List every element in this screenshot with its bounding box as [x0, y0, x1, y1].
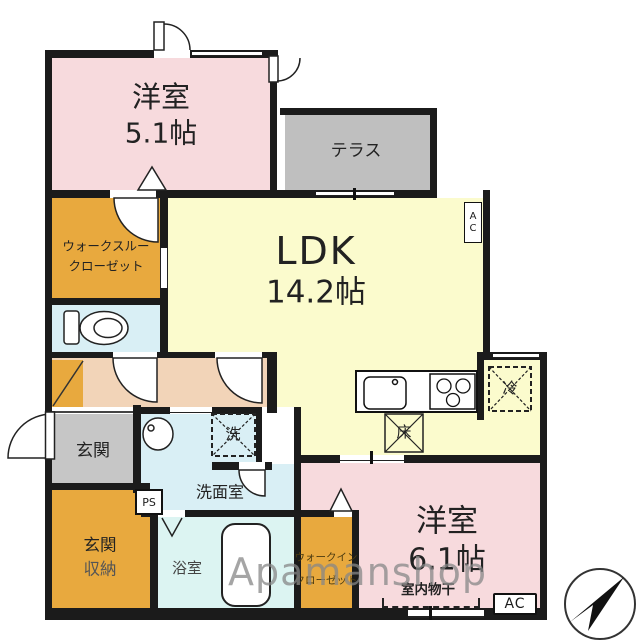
washbasin-icon [143, 418, 173, 450]
washer-label: 洗 [225, 427, 240, 443]
room-size-bedroom1: 5.1帖 [125, 118, 198, 147]
door-swing-marker [138, 167, 166, 190]
door-swing-arc [277, 58, 300, 81]
room-label-washroom: 洗面室 [196, 485, 244, 502]
ps-box: PS [135, 489, 163, 515]
ac-lower-label: AC [504, 596, 525, 612]
room-label-storage-line1: 玄関 [84, 536, 117, 553]
door-swing-marker [330, 489, 352, 511]
ac-box-lower: AC [493, 593, 537, 615]
room-label-bathroom: 浴室 [172, 561, 202, 577]
north-arrow-icon [565, 569, 635, 639]
room-label-entrance: 玄関 [76, 443, 110, 461]
folding-door-marker [162, 518, 182, 536]
door-swing-arc [164, 24, 190, 50]
refrigerator-label: 冷 [502, 381, 517, 397]
ps-label: PS [142, 496, 156, 509]
indoor-drying-rack [382, 598, 480, 608]
door-swing-arc [113, 358, 157, 402]
room-label-bedroom1: 洋室 [132, 82, 190, 112]
door-leaf [269, 56, 278, 82]
floor-plan: 洋室 5.1帖 テラス LDK 14.2帖 ウォークスルー クローゼット 玄関 … [0, 0, 640, 640]
floor-hatch-label: 床 [396, 425, 411, 441]
door-leaf [46, 412, 55, 459]
door-leaf [154, 22, 164, 50]
door-swing-arc [114, 198, 158, 242]
room-label-bedroom2: 洋室 [416, 506, 478, 539]
ac-box-upper: AC [464, 202, 482, 243]
shoe-cabinet-diagonal [53, 361, 83, 406]
room-label-storage-line2: 収納 [84, 560, 117, 577]
door-swing-arc [217, 358, 262, 403]
room-label-ldk: LDK [275, 232, 356, 272]
room-label-wtc-line1: ウォークスルー [62, 239, 149, 252]
toilet-icon [64, 311, 128, 345]
kitchen-counter [356, 371, 477, 412]
room-label-wtc-line2: クローゼット [68, 259, 143, 272]
watermark: Apamanshop [228, 550, 487, 594]
kitchen-sink-icon [364, 377, 406, 409]
room-label-terrace: テラス [331, 143, 382, 161]
room-size-ldk: 14.2帖 [266, 277, 366, 310]
ac-upper-label: AC [468, 211, 479, 235]
